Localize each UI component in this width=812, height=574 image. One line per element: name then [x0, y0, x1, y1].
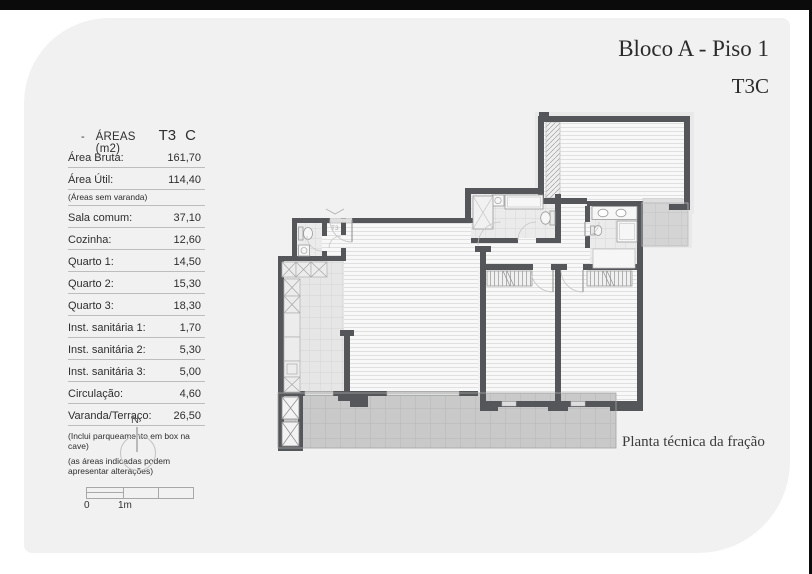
- area-row: Quarto 2: 15,30: [68, 272, 205, 294]
- area-label: Quarto 1:: [68, 256, 114, 268]
- bedroom2-wardrobe: [587, 271, 632, 286]
- area-value: 5,00: [180, 366, 205, 378]
- area-label: Quarto 2:: [68, 278, 114, 290]
- area-label: Cozinha:: [68, 234, 111, 246]
- quarto3-wardrobe: [546, 122, 560, 198]
- areas-table-header: - ÁREAS (m2) T3 C: [68, 127, 205, 144]
- area-row: Sala comum: 37,10: [68, 206, 205, 228]
- area-value: 5,30: [180, 344, 205, 356]
- area-label: Inst. sanitária 2:: [68, 344, 146, 356]
- area-row: Cozinha: 12,60: [68, 228, 205, 250]
- toilet: [299, 227, 304, 240]
- page-title: Bloco A - Piso 1: [618, 36, 769, 62]
- sink-basin: [616, 209, 626, 217]
- area-label: Inst. sanitária 1:: [68, 322, 146, 334]
- area-label: Varanda/Terraço:: [68, 410, 152, 422]
- area-value: 15,30: [173, 278, 205, 290]
- bathtub: [617, 221, 637, 242]
- header-typology: T3: [159, 127, 177, 144]
- area-row: Quarto 1: 14,50: [68, 250, 205, 272]
- header-fraction: C: [185, 127, 196, 144]
- area-value: 18,30: [173, 300, 205, 312]
- scale-label-1m: 1m: [118, 500, 132, 511]
- area-row: Inst. sanitária 1: 1,70: [68, 316, 205, 338]
- bedroom1-floor: [486, 268, 555, 401]
- toilet-bowl: [541, 212, 551, 224]
- sink: [299, 245, 310, 256]
- scale-divider: [158, 488, 159, 498]
- scale-bar: [86, 487, 194, 499]
- header-dash: -: [81, 131, 85, 143]
- area-row: Inst. sanitária 2: 5,30: [68, 338, 205, 360]
- title-block: Bloco A - Piso 1 T3C: [618, 36, 769, 98]
- compass-north-label: N: [131, 414, 139, 426]
- area-label: Área Bruta:: [68, 152, 124, 164]
- area-value: 37,10: [173, 212, 205, 224]
- area-value: 26,50: [173, 410, 205, 422]
- quarto3-floor: [544, 122, 684, 204]
- compass-icon: [120, 435, 156, 471]
- area-value: 12,60: [173, 234, 205, 246]
- area-value: 14,50: [173, 256, 205, 268]
- sink-basin: [598, 209, 608, 217]
- sink: [492, 195, 504, 206]
- closet-unit: [593, 249, 635, 268]
- fraction-title: T3C: [618, 74, 769, 98]
- toilet: [550, 211, 555, 225]
- entrance-label: T3: [331, 225, 339, 232]
- entrance-chevron: [326, 209, 344, 214]
- area-value: 4,60: [180, 388, 205, 400]
- area-value: 114,40: [168, 174, 205, 186]
- area-row: Quarto 3: 18,30: [68, 294, 205, 316]
- floor-plan: T3: [265, 108, 710, 464]
- area-label: Área Útil:: [68, 174, 113, 186]
- bedroom1-wardrobe: [487, 271, 532, 286]
- area-label: Circulação:: [68, 388, 123, 400]
- area-label: Sala comum:: [68, 212, 132, 224]
- area-row: Área Útil: 114,40: [68, 168, 205, 190]
- area-label: Inst. sanitária 3:: [68, 366, 146, 378]
- area-row: Inst. sanitária 3: 5,00: [68, 360, 205, 382]
- page: Bloco A - Piso 1 T3C - ÁREAS (m2) T3 C Á…: [0, 0, 812, 574]
- area-row: Circulação: 4,60: [68, 382, 205, 404]
- area-value: 161,70: [167, 152, 205, 164]
- area-label: Quarto 3:: [68, 300, 114, 312]
- toilet-bowl: [304, 228, 313, 240]
- scale-divider: [123, 488, 124, 498]
- scale-label-zero: 0: [84, 500, 90, 511]
- area-value: 1,70: [180, 322, 205, 334]
- hall-floor: [561, 194, 585, 270]
- summary-note: (Áreas sem varanda): [68, 190, 205, 206]
- top-black-bar: [0, 0, 812, 10]
- bedroom2-floor: [561, 268, 637, 401]
- scale-subdivision: [87, 492, 123, 493]
